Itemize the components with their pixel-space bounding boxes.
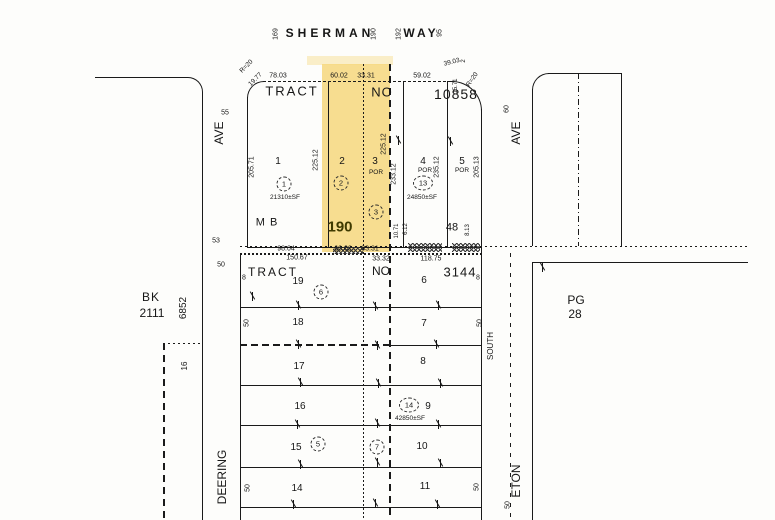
ref-pg-number: 28 [568,308,581,320]
dim-2: 2 [461,59,467,62]
dim-r20-nw: R=20 [239,59,255,75]
survey-tick [375,302,376,311]
map-line [532,262,748,263]
survey-tick [440,459,441,468]
address-190: 190 [371,28,378,40]
survey-tick [377,419,378,428]
survey-tick [300,378,301,387]
map-line [240,307,481,308]
dim-33-31-bottom: 33.31 [361,246,379,253]
map-line [363,64,364,520]
lot-15: 15 [290,443,301,453]
dim-15-71: 15.71 [453,78,459,93]
survey-tick [375,499,376,508]
survey-tick [542,263,543,272]
survey-tick [298,301,299,310]
circled-7: 7 [370,440,385,455]
map-line [187,77,203,95]
upper-tract-no: NO [371,86,393,99]
circled-1: 1 [277,177,292,192]
survey-tick [450,137,451,146]
map-line [240,344,390,346]
parcel-4-area: 24850±SF [407,195,437,202]
upper-tract-word: TRACT [265,85,318,98]
map-line [532,73,550,91]
dim-225-12-a: 225.12 [313,149,320,170]
lower-tract-word: TRACT [248,266,298,278]
lot-6: 6 [421,276,427,286]
edge-50-b: 50 [477,319,484,327]
parcel-5-number: 5 [459,157,465,167]
survey-tick [293,500,294,509]
lot-11: 11 [420,482,430,492]
edge-50-a: 50 [244,319,251,327]
survey-tick [298,340,299,349]
survey-tick [398,136,399,145]
map-line [202,93,203,520]
dim-33-31-top: 33.31 [357,73,375,80]
survey-tick [440,379,441,388]
address-169: 169 [273,28,280,40]
dim-60-02-bottom: 60.02 [334,246,352,253]
lot-16: 16 [294,402,305,412]
survey-tick [378,379,379,388]
dim-10-71: 10.71 [394,223,400,238]
street-sherman: SHERMAN [286,27,375,39]
parcel-1-area: 21310±SF [270,195,300,202]
lot-19: 19 [292,277,303,287]
dim-78-03: 78.03 [269,73,287,80]
num-48: 48 [446,223,458,234]
street-ave-left: AVE [213,121,225,144]
map-line [163,343,202,344]
lot-9: 9 [425,402,431,412]
parcel-map: SHERMANWAY16919019295AVE55DEERINGAVE60ET… [0,0,775,520]
survey-tick [438,420,439,429]
map-line [240,467,481,468]
hatch-area [408,243,442,252]
address-95: 95 [437,29,444,37]
dim-150-67: 150.67 [286,255,307,262]
num-53: 53 [212,238,220,245]
dim-60-02-top: 60.02 [330,73,348,80]
lot-10: 10 [416,442,427,452]
ref-pg: PG [567,294,584,306]
parcel-4-number: 4 [420,157,426,167]
label-south: SOUTH [487,332,495,360]
circled-13: 13 [413,176,433,191]
map-line [240,425,481,426]
ref-6852: 6852 [179,297,189,319]
ref-bk: BK [142,291,160,303]
num-50-left: 50 [217,262,225,269]
lot-18: 18 [292,318,303,328]
map-line [532,89,533,246]
ref-bk-number: 2111 [140,307,165,319]
map-line [240,507,481,508]
dim-225-12-b: 225.12 [381,133,388,154]
lot-17: 17 [293,362,304,372]
survey-tick [297,420,298,429]
circled-5: 5 [311,437,326,452]
edge-8-left: 8 [242,275,246,282]
map-line [240,253,241,520]
survey-tick [377,341,378,350]
map-line [263,81,453,82]
street-ave-right: AVE [510,121,522,144]
map-line [240,385,481,386]
circled-6: 6 [314,285,329,300]
address-192: 192 [396,28,403,40]
map-line [532,262,533,520]
lot-7: 7 [421,319,427,329]
dim-205-13: 205.13 [474,156,481,177]
dim-233-12: 233.12 [391,163,398,184]
map-line [548,73,621,74]
lower-tract-number: 3144 [444,266,477,279]
survey-tick [300,460,301,469]
map-line [389,64,391,520]
edge-50-c: 50 [245,484,252,492]
parcel-1-number: 1 [275,157,281,167]
parcel-3-por: POR [369,170,383,177]
survey-tick [252,292,253,301]
survey-tick [377,458,378,467]
map-book-page-190: 190 [327,220,352,235]
street-eton: ETON [510,464,522,497]
edge-8-right: 8 [476,275,480,282]
street-way: WAY [403,27,438,39]
hatch-area [452,243,480,252]
circled-14: 14 [399,398,419,413]
map-line [481,109,482,520]
dim-118-75: 118.75 [421,256,442,263]
dim-98-04: 98.04 [277,246,295,253]
lot-8: 8 [420,357,426,367]
dim-59-02: 59.02 [413,73,431,80]
dim-6-12: 6.12 [403,223,409,235]
parcel-2-number: 2 [339,157,345,167]
map-line [95,77,187,78]
map-line [578,73,579,246]
ref-16: 16 [181,362,189,371]
dim-33-32: 33.32 [372,256,390,263]
parcel-5-por: POR [455,168,469,175]
dim-39-03: 39.03 [443,58,460,68]
street-width-60: 60 [504,105,511,113]
map-line [163,343,165,520]
circled-3: 3 [369,205,384,220]
map-line [621,73,622,246]
edge-50-d: 50 [474,483,481,491]
lower-tract-no: NO [372,265,390,277]
dim-8-13: 8.13 [465,224,471,236]
street-deering: DEERING [216,450,228,505]
dim-205-71: 205.71 [249,156,256,177]
map-book-label: M B [256,218,279,229]
parcel-3-number: 3 [372,157,378,167]
lot-14: 14 [291,484,302,494]
survey-tick [436,340,437,349]
parcel-4-por: POR [418,168,432,175]
lot-9-area: 42850±SF [395,416,425,423]
survey-tick [437,500,438,509]
street-width-50-eton: 50 [505,501,512,509]
circled-2: 2 [334,176,349,191]
dim-235-12: 235.12 [434,156,441,177]
survey-tick [438,301,439,310]
map-line [240,246,750,247]
street-width-55: 55 [221,110,229,117]
